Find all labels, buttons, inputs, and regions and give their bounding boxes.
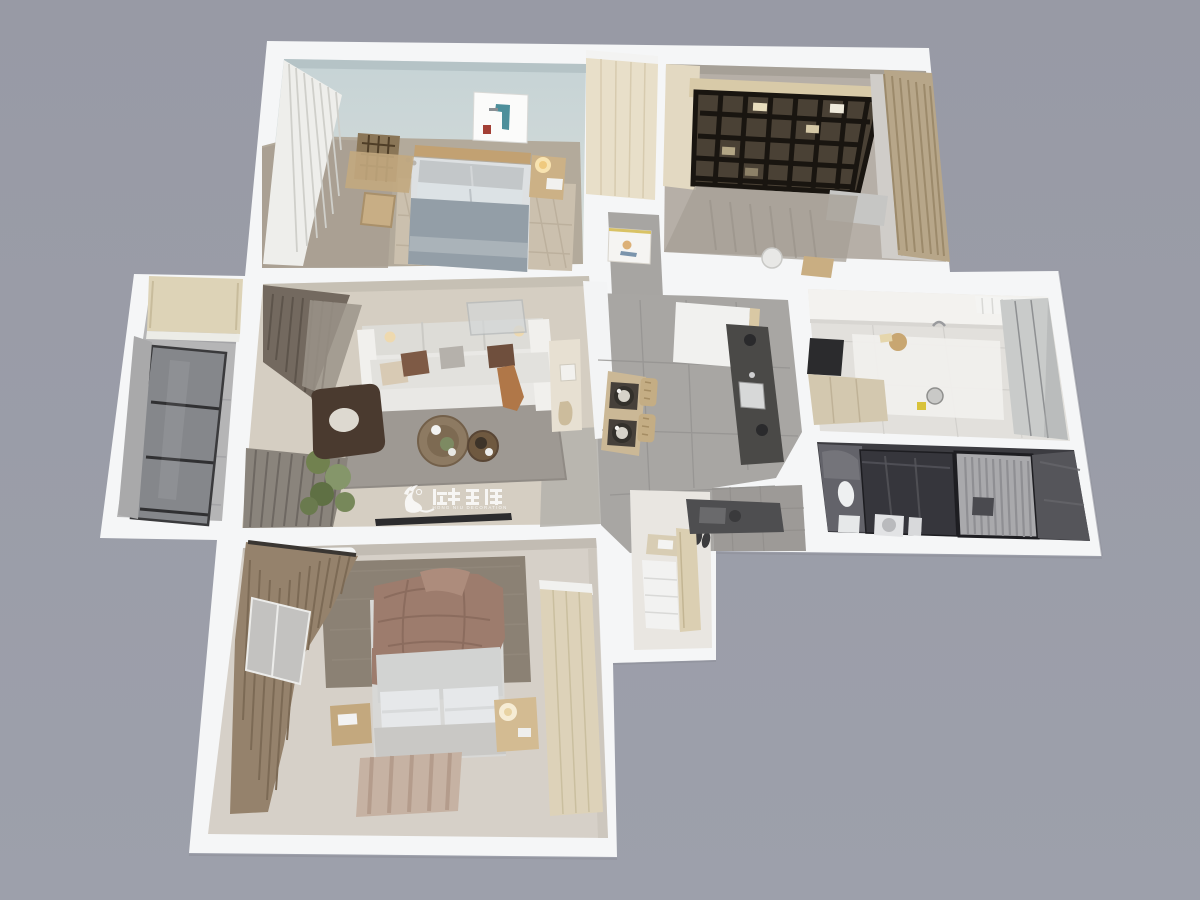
svg-text:HONG NIU DECORATION: HONG NIU DECORATION xyxy=(433,505,508,510)
